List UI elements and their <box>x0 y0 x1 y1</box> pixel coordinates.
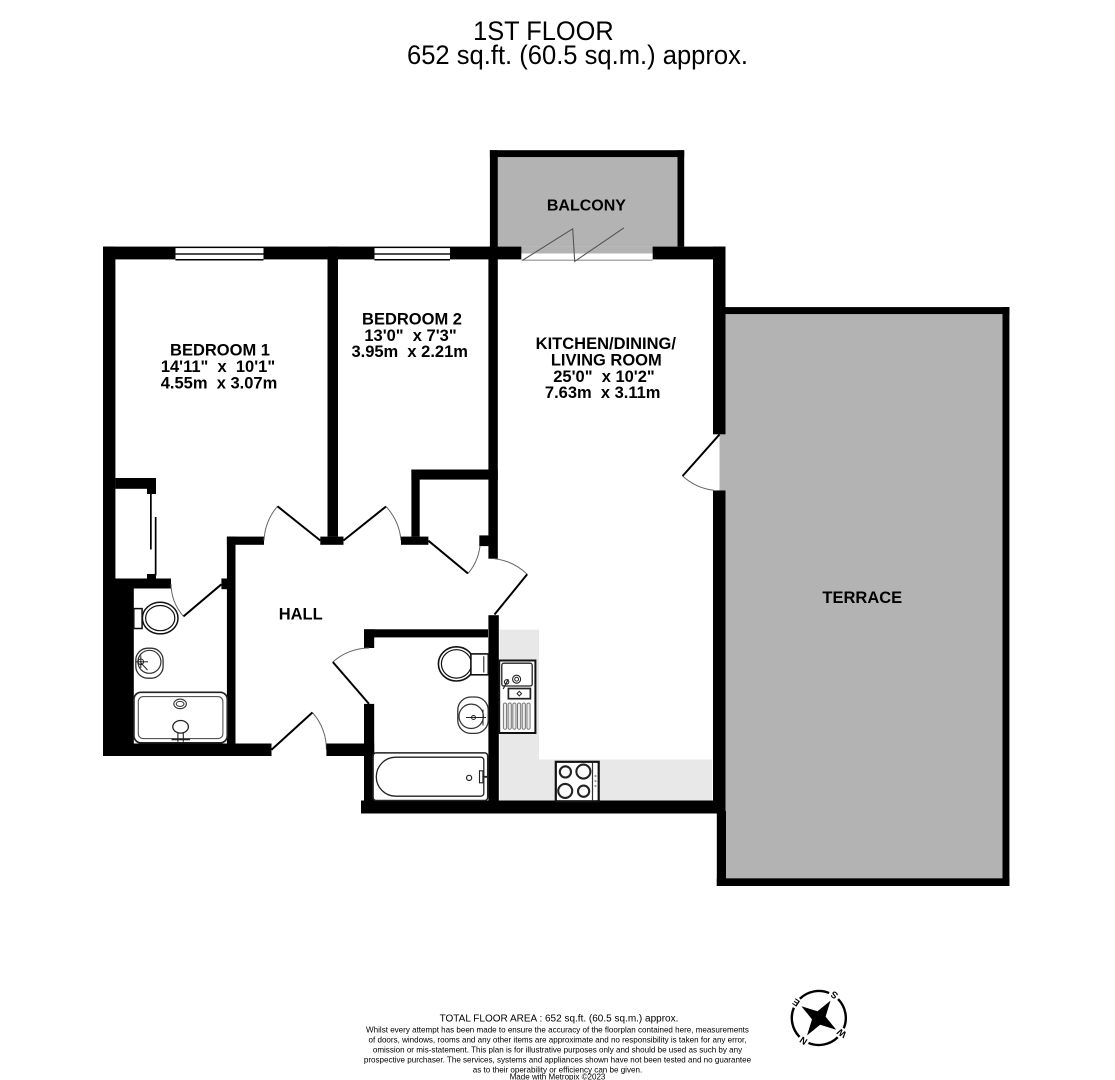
svg-text:TERRACE: TERRACE <box>822 589 902 607</box>
svg-text:14'11" x 10'1": 14'11" x 10'1" <box>161 358 275 376</box>
svg-text:prospective purchaser. The ser: prospective purchaser. The services, sys… <box>364 1055 752 1064</box>
svg-text:Whilst every attempt has been: Whilst every attempt has been made to en… <box>366 1026 749 1035</box>
svg-text:BEDROOM 1: BEDROOM 1 <box>170 342 270 360</box>
svg-text:Made with Metropix ©2023: Made with Metropix ©2023 <box>510 1073 606 1080</box>
svg-text:BALCONY: BALCONY <box>547 197 626 214</box>
svg-text:3.95m x 2.21m: 3.95m x 2.21m <box>351 343 468 361</box>
svg-text:13'0" x 7'3": 13'0" x 7'3" <box>364 327 456 345</box>
svg-text:of doors, windows, rooms and a: of doors, windows, rooms and any other i… <box>369 1036 747 1045</box>
svg-text:7.63m x 3.11m: 7.63m x 3.11m <box>545 384 661 402</box>
svg-text:25'0" x 10'2": 25'0" x 10'2" <box>553 368 654 386</box>
svg-text:HALL: HALL <box>279 605 323 623</box>
svg-text:LIVING ROOM: LIVING ROOM <box>551 351 662 369</box>
svg-text:omission or mis-statement. Thi: omission or mis-statement. This plan is … <box>373 1046 742 1055</box>
svg-text:4.55m x 3.07m: 4.55m x 3.07m <box>161 374 278 392</box>
svg-text:652 sq.ft. (60.5 sq.m.) approx: 652 sq.ft. (60.5 sq.m.) approx. <box>407 40 748 70</box>
svg-text:KITCHEN/DINING/: KITCHEN/DINING/ <box>536 335 677 353</box>
svg-text:BEDROOM 2: BEDROOM 2 <box>362 311 462 329</box>
svg-text:TOTAL FLOOR AREA : 652 sq.ft.: TOTAL FLOOR AREA : 652 sq.ft. (60.5 sq.m… <box>440 1014 679 1025</box>
